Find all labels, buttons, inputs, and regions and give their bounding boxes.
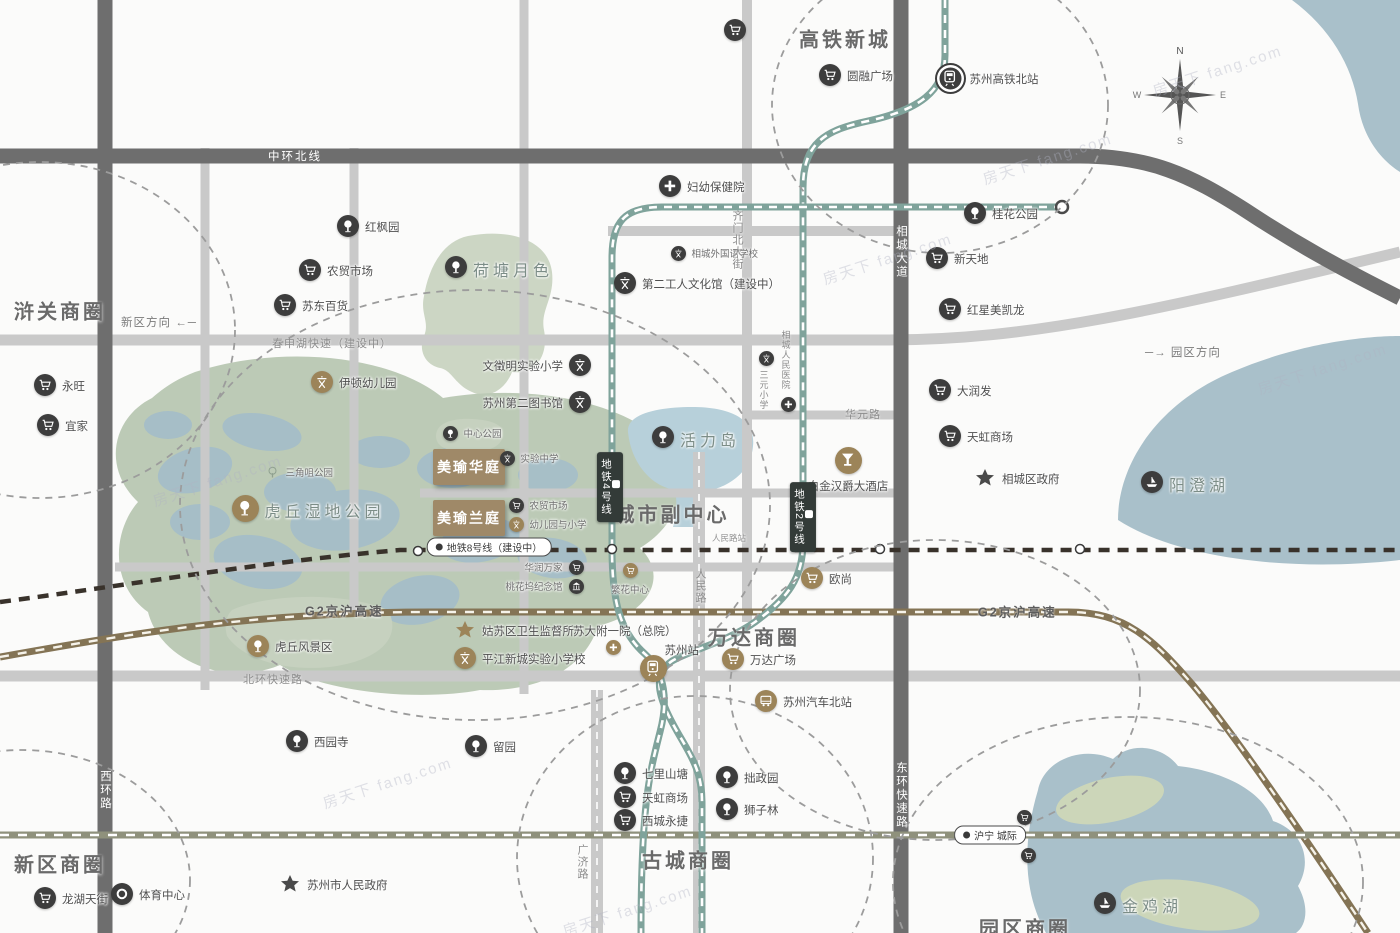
compass-west-label: W — [1133, 90, 1142, 100]
city-map[interactable]: N S E W 美瑜华庭美瑜兰庭圆融广场苏州高铁北站红枫园农贸市场苏东百货妇幼保… — [0, 0, 1400, 933]
compass-rose: N S E W — [1133, 46, 1226, 146]
compass-east-label: E — [1220, 90, 1226, 100]
compass-south-label: S — [1177, 136, 1183, 146]
compass-north-label: N — [1176, 46, 1183, 57]
map-base-graphics: N S E W — [0, 0, 1400, 933]
